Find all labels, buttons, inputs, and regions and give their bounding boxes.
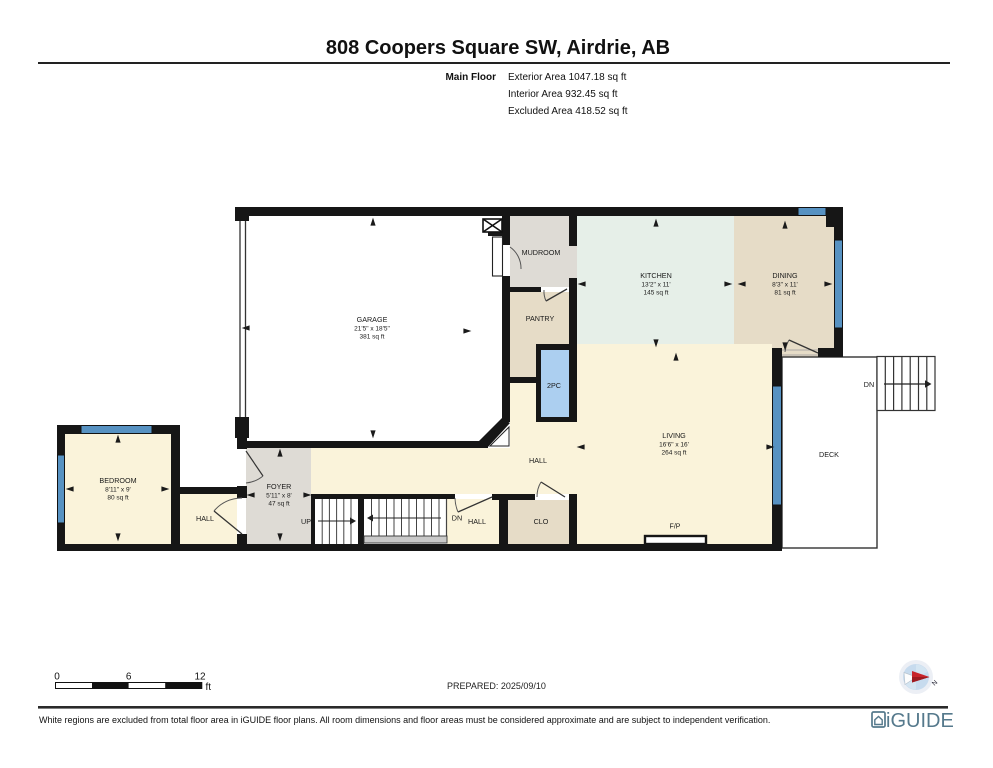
svg-text:264 sq ft: 264 sq ft [662, 449, 687, 456]
svg-text:HALL: HALL [468, 517, 486, 526]
svg-text:ft: ft [206, 682, 212, 693]
svg-text:HALL: HALL [529, 456, 547, 465]
svg-text:HALL: HALL [196, 514, 214, 523]
svg-text:0: 0 [54, 672, 60, 683]
svg-text:F/P: F/P [670, 524, 681, 531]
svg-text:808 Coopers Square SW, Airdrie: 808 Coopers Square SW, Airdrie, AB [326, 37, 670, 59]
svg-text:145 sq ft: 145 sq ft [644, 289, 669, 296]
svg-text:FOYER: FOYER [267, 482, 292, 491]
svg-text:DN: DN [452, 514, 462, 523]
svg-text:Exterior Area 1047.18 sq ft: Exterior Area 1047.18 sq ft [508, 72, 627, 83]
svg-text:GARAGE: GARAGE [357, 315, 388, 324]
svg-text:KITCHEN: KITCHEN [640, 271, 672, 280]
svg-text:2PC: 2PC [547, 381, 561, 390]
svg-text:81 sq ft: 81 sq ft [774, 289, 796, 296]
svg-text:16'6" x 16': 16'6" x 16' [659, 441, 689, 448]
svg-text:iGUIDE: iGUIDE [886, 710, 954, 732]
svg-text:5'11" x 8': 5'11" x 8' [266, 492, 292, 499]
svg-text:Main Floor: Main Floor [445, 72, 496, 83]
svg-text:UP: UP [301, 517, 311, 526]
svg-text:381 sq ft: 381 sq ft [360, 333, 385, 340]
svg-text:DINING: DINING [772, 271, 798, 280]
svg-text:DECK: DECK [819, 450, 839, 459]
svg-text:LIVING: LIVING [662, 431, 686, 440]
svg-text:PANTRY: PANTRY [526, 314, 555, 323]
svg-text:Interior Area 932.45 sq ft: Interior Area 932.45 sq ft [508, 89, 618, 100]
svg-text:White regions are excluded fro: White regions are excluded from total fl… [39, 715, 770, 725]
svg-text:47 sq ft: 47 sq ft [268, 500, 290, 507]
svg-text:Excluded Area 418.52 sq ft: Excluded Area 418.52 sq ft [508, 106, 628, 117]
svg-text:CLO: CLO [534, 517, 549, 526]
svg-text:21'5" x 18'5": 21'5" x 18'5" [354, 325, 390, 332]
svg-text:BEDROOM: BEDROOM [99, 476, 136, 485]
svg-text:8'11" x 9': 8'11" x 9' [105, 486, 131, 493]
svg-text:13'2" x 11': 13'2" x 11' [641, 281, 670, 288]
svg-text:MUDROOM: MUDROOM [522, 248, 561, 257]
svg-text:PREPARED: 2025/09/10: PREPARED: 2025/09/10 [447, 681, 546, 691]
svg-text:DN: DN [864, 380, 874, 389]
svg-text:6: 6 [126, 672, 132, 683]
svg-text:8'3" x 11': 8'3" x 11' [772, 281, 798, 288]
svg-text:12: 12 [194, 672, 206, 683]
svg-text:80 sq ft: 80 sq ft [107, 494, 129, 501]
